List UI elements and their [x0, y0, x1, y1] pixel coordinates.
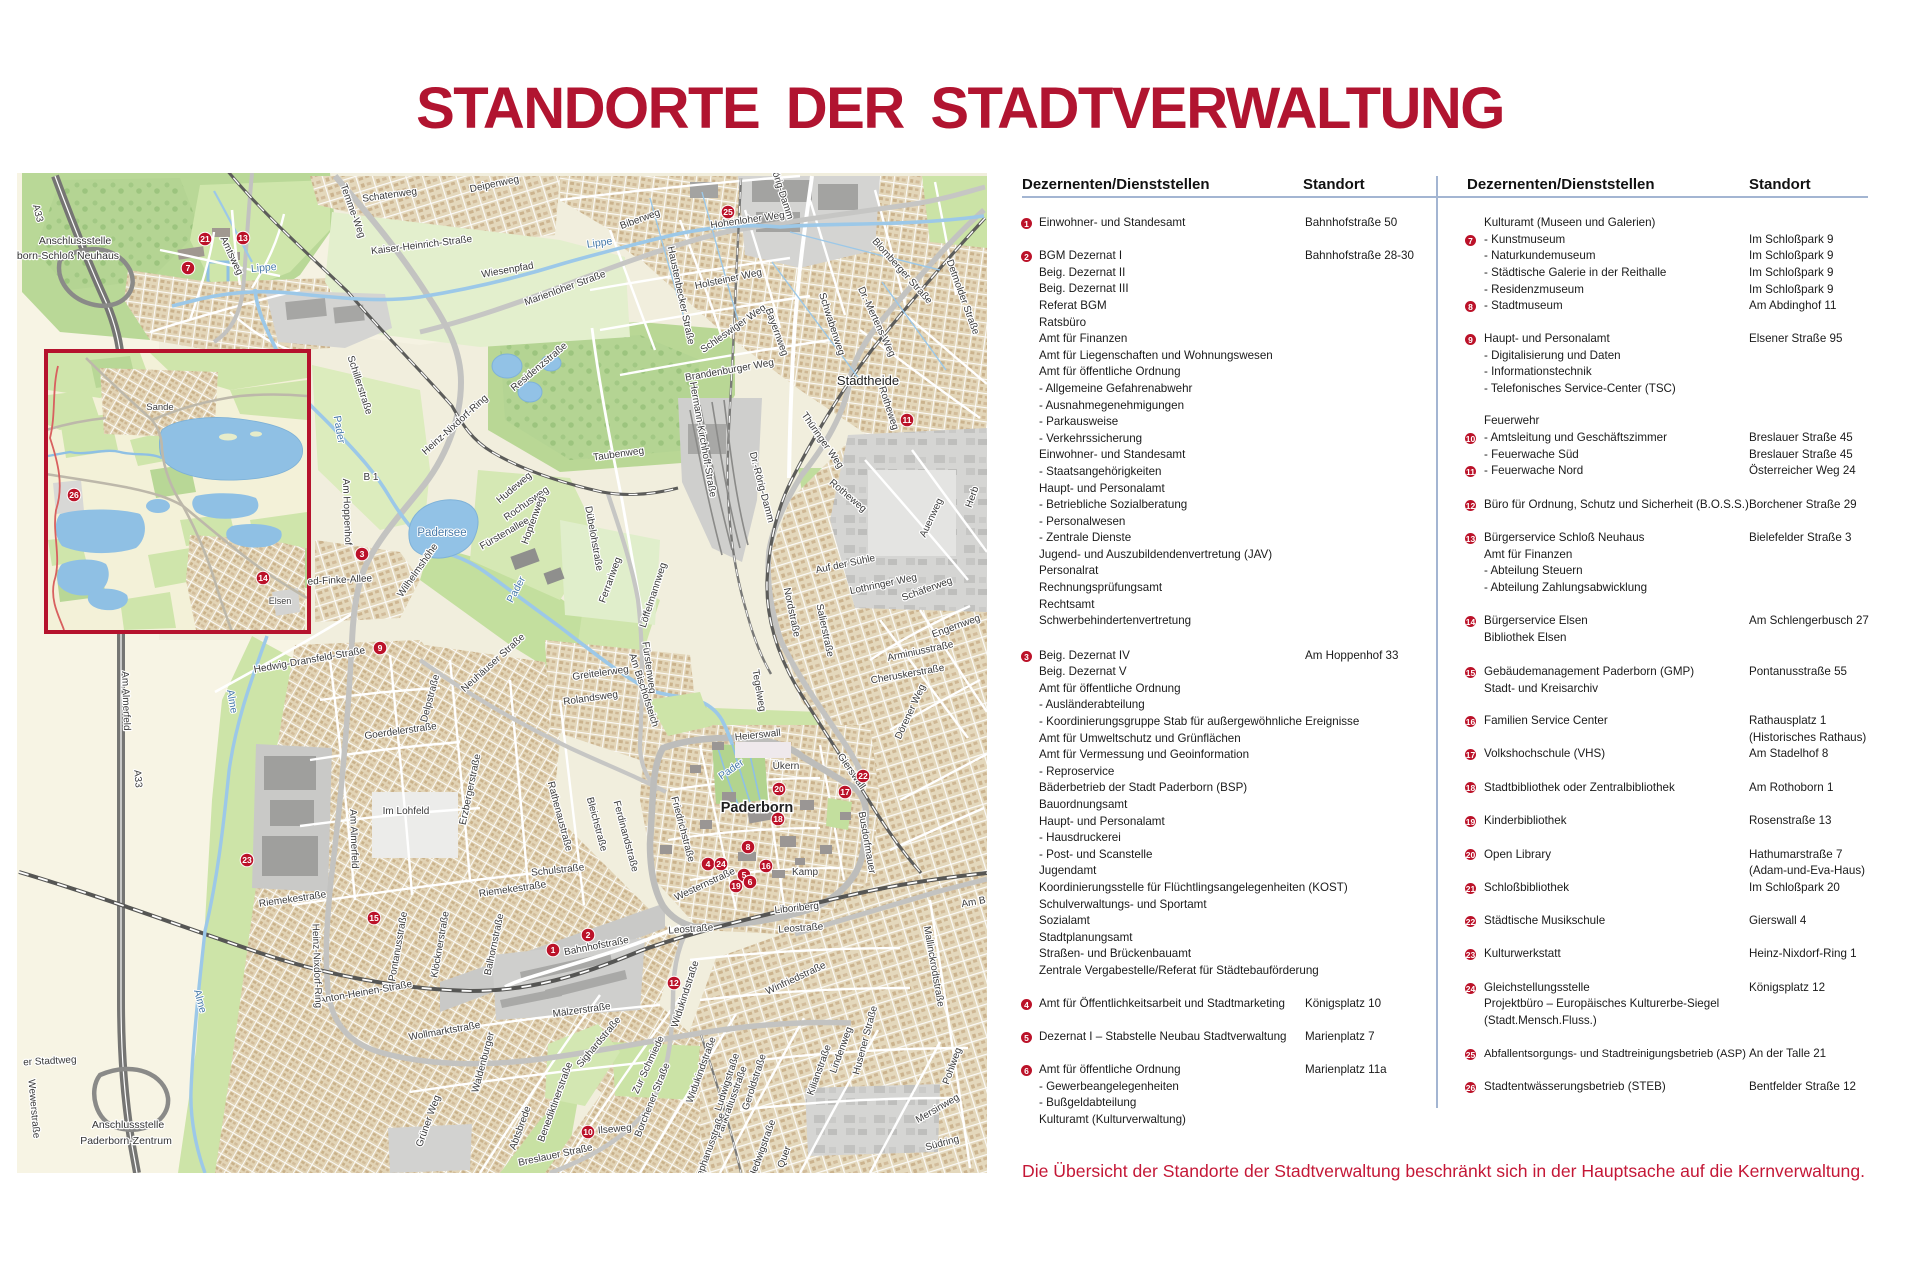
svg-text:23: 23 — [242, 855, 252, 865]
svg-text:15: 15 — [369, 913, 379, 923]
svg-text:9: 9 — [378, 643, 383, 653]
svg-text:2: 2 — [586, 930, 591, 940]
svg-text:Lippe: Lippe — [250, 261, 277, 275]
svg-text:Am Almerfeld: Am Almerfeld — [347, 809, 360, 869]
svg-text:Am Almerfeld: Am Almerfeld — [119, 671, 132, 731]
svg-text:Elsen: Elsen — [269, 596, 292, 606]
svg-text:1: 1 — [551, 945, 556, 955]
svg-text:3: 3 — [360, 549, 365, 559]
svg-text:Kamp: Kamp — [792, 867, 819, 878]
svg-text:4: 4 — [706, 859, 711, 869]
svg-text:Paderborn-Zentrum: Paderborn-Zentrum — [80, 1135, 172, 1147]
svg-text:12: 12 — [669, 978, 679, 988]
svg-text:Stadtheide: Stadtheide — [837, 373, 899, 388]
svg-text:21: 21 — [200, 234, 210, 244]
svg-text:Ükern: Ükern — [773, 760, 800, 772]
svg-text:Im Lohfeld: Im Lohfeld — [383, 806, 430, 817]
svg-text:Anschlussstelle: Anschlussstelle — [92, 1119, 165, 1131]
svg-text:11: 11 — [902, 415, 911, 425]
svg-text:Sande: Sande — [146, 402, 173, 413]
svg-text:25: 25 — [723, 207, 733, 217]
svg-text:Am Hoppenhof: Am Hoppenhof — [340, 478, 353, 545]
svg-text:B 1: B 1 — [363, 472, 378, 483]
svg-text:20: 20 — [774, 784, 784, 794]
svg-text:22: 22 — [858, 771, 868, 781]
svg-text:13: 13 — [238, 233, 248, 243]
svg-text:19: 19 — [731, 881, 741, 891]
svg-text:24: 24 — [716, 859, 726, 869]
svg-text:A33: A33 — [131, 769, 144, 788]
svg-text:26: 26 — [69, 490, 79, 500]
svg-text:8: 8 — [746, 842, 751, 852]
svg-text:14: 14 — [258, 573, 268, 583]
svg-text:18: 18 — [773, 814, 783, 824]
svg-text:6: 6 — [748, 877, 753, 887]
svg-text:born-Schloß Neuhaus: born-Schloß Neuhaus — [17, 250, 119, 262]
svg-text:10: 10 — [583, 1127, 593, 1137]
svg-text:16: 16 — [761, 861, 771, 871]
svg-text:17: 17 — [840, 787, 850, 797]
svg-text:Anschlussstelle: Anschlussstelle — [39, 235, 112, 247]
svg-text:7: 7 — [186, 263, 191, 273]
svg-text:Padersee: Padersee — [417, 527, 466, 539]
